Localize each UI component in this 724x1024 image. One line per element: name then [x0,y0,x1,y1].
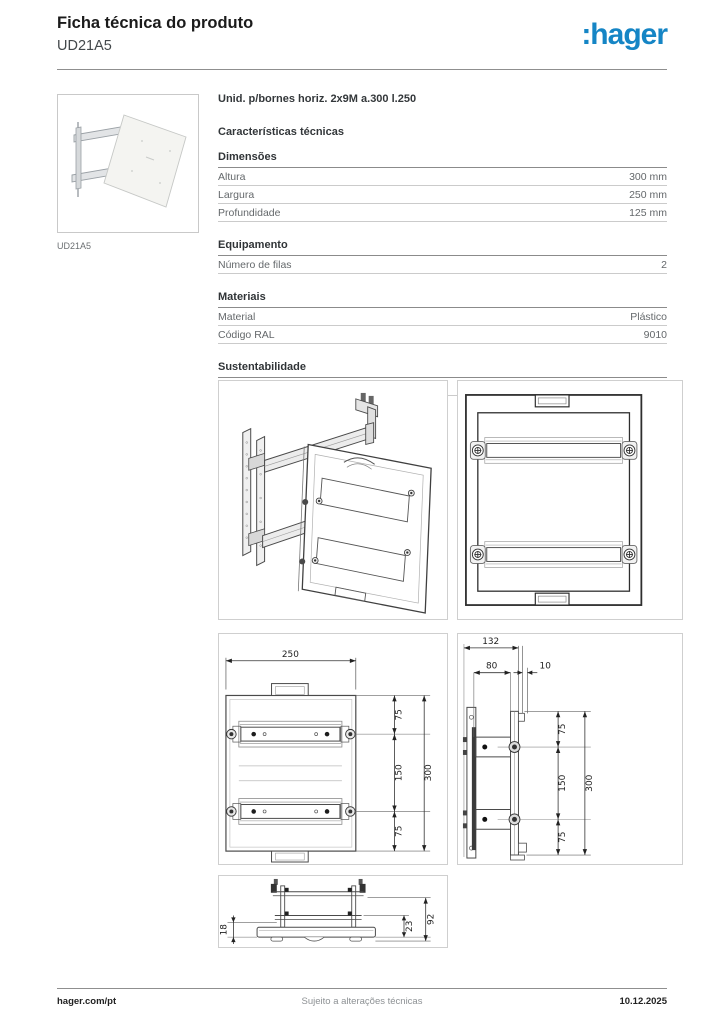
page: { "header": { "title": "Ficha técnica do… [0,0,724,1024]
dim-height: 300 [585,774,595,791]
page-title: Ficha técnica do produto [57,14,253,33]
group-title: Dimensões [218,151,667,168]
drawing-isometric-view [218,380,448,620]
dim-bottom: 75 [558,832,568,843]
table-row: Largura 250 mm [218,186,667,204]
characteristics-title: Características técnicas [218,126,667,138]
table-row: Material Plástico [218,308,667,326]
dim-overall-width: 132 [482,637,499,647]
row-value: 300 mm [629,171,667,183]
table-row: Código RAL 9010 [218,326,667,344]
row-label: Código RAL [218,329,275,341]
row-label: Material [218,311,255,323]
tech-data-column: Unid. p/bornes horiz. 2x9M a.300 l.250 C… [218,93,667,429]
drawing-front-dimensions: 250 75 150 75 300 [218,633,448,865]
drawing-side-view: 132 80 10 75 150 75 300 [457,633,683,865]
dim-top: 75 [558,724,568,735]
dim-width: 250 [282,650,299,660]
product-thumbnail [57,94,199,233]
dim-bottom: 75 [394,826,404,837]
row-label: Largura [218,189,254,201]
table-row: Altura 300 mm [218,168,667,186]
group-equipamento: Equipamento Número de filas 2 [218,239,667,274]
row-label: Número de filas [218,259,292,271]
footer-date: 10.12.2025 [619,996,667,1007]
dim-middle: 150 [558,774,568,791]
footer-divider [57,988,667,989]
drawing-front-view [457,380,683,620]
footer-note: Sujeito a alterações técnicas [0,996,724,1007]
group-dimensoes: Dimensões Altura 300 mm Largura 250 mm P… [218,151,667,222]
row-label: Altura [218,171,245,183]
row-value: 125 mm [629,207,667,219]
dim-lip: 10 [540,662,552,672]
group-title: Materiais [218,291,667,308]
row-value: 9010 [644,329,667,341]
row-value: 250 mm [629,189,667,201]
row-value: 2 [661,259,667,271]
table-row: Profundidade 125 mm [218,204,667,222]
product-description: Unid. p/bornes horiz. 2x9M a.300 l.250 [218,93,667,105]
product-code: UD21A5 [57,38,112,54]
thumbnail-caption: UD21A5 [57,241,91,251]
group-title: Sustentabilidade [218,361,667,378]
dim-top: 75 [394,709,404,720]
group-title: Equipamento [218,239,667,256]
table-row: Número de filas 2 [218,256,667,274]
dim-height: 300 [424,764,434,781]
header-divider [57,69,667,70]
dim-depth: 80 [486,662,498,672]
dim-inner-height: 23 [405,921,415,932]
dim-overall-height: 92 [427,914,437,925]
product-thumbnail-image [58,95,198,232]
drawing-section-view: 18 23 92 [218,875,448,948]
row-label: Profundidade [218,207,280,219]
dim-middle: 150 [394,764,404,781]
dim-plate-inset: 18 [220,924,230,936]
row-value: Plástico [630,311,667,323]
hager-logo: :hager [581,18,667,52]
group-materiais: Materiais Material Plástico Código RAL 9… [218,291,667,344]
